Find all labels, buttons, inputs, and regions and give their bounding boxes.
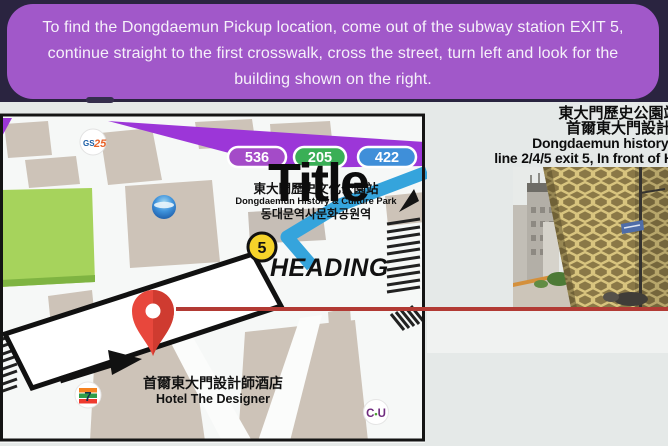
- svg-text:5: 5: [258, 240, 267, 257]
- address-line-en-2: line 2/4/5 exit 5, In front of Hotel The…: [426, 151, 668, 166]
- hotel-building-photo: [513, 167, 668, 308]
- dome-landmark-icon: [152, 195, 176, 219]
- svg-text:C•U: C•U: [366, 408, 386, 420]
- pin-connector-line: [176, 307, 668, 311]
- hotel-label-en: Hotel The Designer: [156, 392, 270, 406]
- hotel-label-zh: 首爾東大門設計師酒店: [143, 375, 283, 391]
- bus-badge-536-label: 536: [245, 150, 269, 166]
- banner-line-2: continue straight to the first crosswalk…: [23, 41, 643, 67]
- seven-eleven-logo: 7: [75, 382, 101, 408]
- address-line-zh-2: 首爾東大門設計師酒店: [426, 121, 668, 136]
- svg-text:7: 7: [84, 389, 91, 404]
- address-line-zh-1: 東大門歷史公園站地鐵站: [426, 106, 668, 121]
- overlay-heading-text: HEADING: [270, 256, 389, 281]
- hotel-labels: 首爾東大門設計師酒店 Hotel The Designer: [143, 375, 283, 406]
- overlay-title-text: Title: [268, 156, 368, 210]
- address-line-en-1: Dongdaemun history culture park: [426, 136, 668, 151]
- banner-line-3: building shown on the right.: [23, 67, 643, 93]
- photo-svg: [513, 167, 668, 308]
- page: { "banner": { "lines": [ "To find the Do…: [0, 0, 668, 446]
- svg-text:25: 25: [93, 138, 107, 150]
- park-area: [0, 188, 95, 287]
- pickup-address-block: 東大門歷史公園站地鐵站 首爾東大門設計師酒店 Dongdaemun histor…: [426, 106, 668, 166]
- instruction-banner: To find the Dongdaemun Pickup location, …: [7, 4, 659, 99]
- banner-line-1: To find the Dongdaemun Pickup location, …: [23, 15, 643, 41]
- banner-edge-mark: [86, 97, 114, 103]
- cu-logo: C•U: [364, 400, 389, 425]
- bus-badge-422-label: 422: [375, 150, 399, 166]
- bottom-right-area: [427, 311, 668, 353]
